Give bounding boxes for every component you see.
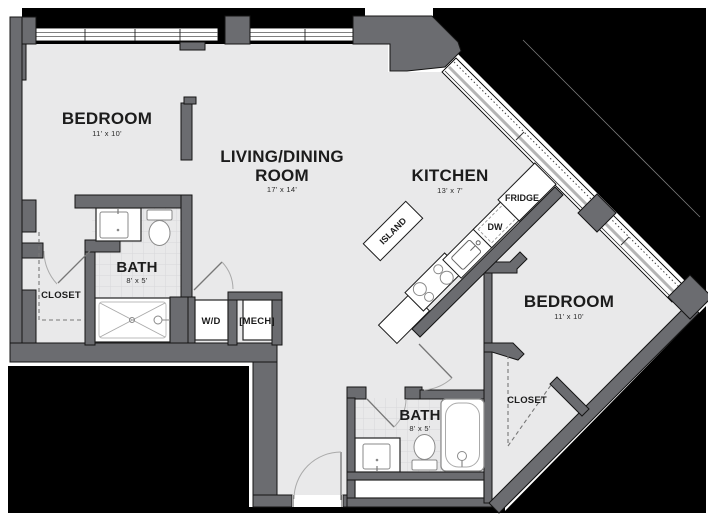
toilet1-tank <box>147 210 172 220</box>
bath1-dims: 8' x 5' <box>126 276 147 285</box>
wall-corridor-bottom <box>253 495 292 507</box>
wd-label: W/D <box>201 316 220 327</box>
bath2-dims: 8' x 5' <box>409 424 430 433</box>
wall-mech-north <box>228 292 282 300</box>
living-dims: 17' x 14' <box>267 185 297 194</box>
wall-bath2-north-b <box>405 387 422 399</box>
wall-left <box>10 17 22 362</box>
wall-bath2-north-c <box>420 390 492 399</box>
bedroom1-label: BEDROOM <box>62 109 152 128</box>
bath1-drain <box>117 229 120 232</box>
fridge-label: FRIDGE <box>505 193 539 203</box>
dw-label: DW <box>488 222 503 232</box>
wall-bath2-south <box>347 472 492 480</box>
wall-top-pier <box>225 16 250 44</box>
bath2-label: BATH <box>399 407 440 424</box>
wall-left-lower <box>22 290 36 343</box>
bedroom1-dims: 11' x 10' <box>92 129 122 138</box>
bath1-label: BATH <box>116 259 157 276</box>
wall-closet1-east <box>85 240 95 345</box>
wall-wd-west <box>188 297 195 343</box>
wall-topleft-block <box>22 17 36 44</box>
living-label-line2: ROOM <box>255 166 309 185</box>
wall-bedroom1-south <box>85 240 120 252</box>
bedroom2-label: BEDROOM <box>524 292 614 311</box>
bath2-drain <box>376 459 379 462</box>
wall-corridor-west <box>253 362 277 505</box>
bedroom2-dims: 11' x 10' <box>554 312 584 321</box>
wall-left-step <box>22 44 26 80</box>
exterior-bottom-left-block <box>8 366 249 507</box>
wall-bath2-north-a <box>347 387 366 399</box>
shower <box>95 298 170 342</box>
kitchen-label: KITCHEN <box>412 166 489 185</box>
wall-bath1-north <box>75 195 192 208</box>
wall-closet-jamb <box>22 243 43 258</box>
wall-bath1-east <box>181 195 192 297</box>
entry-threshold <box>292 495 343 507</box>
living-label-line1: LIVING/DINING <box>220 147 344 166</box>
floor-plan-canvas: BEDROOM 11' x 10' LIVING/DINING ROOM 17'… <box>0 0 708 521</box>
top-windows <box>36 28 353 41</box>
wall-bedroom1-jamb <box>184 97 196 104</box>
kitchen-dims: 13' x 7' <box>437 186 463 195</box>
floor-plan: BEDROOM 11' x 10' LIVING/DINING ROOM 17'… <box>0 0 708 521</box>
exterior-bottom-strip <box>8 507 505 513</box>
toilet2-bowl <box>414 435 435 460</box>
bathtub <box>441 399 484 471</box>
wall-bath2-west <box>347 398 355 505</box>
mech-label: [MECH] <box>239 316 275 327</box>
closet1-label: CLOSET <box>41 290 81 301</box>
wall-bottom-left <box>10 343 277 362</box>
wall-bedroom1-east <box>181 103 192 160</box>
entry-niche <box>355 480 484 498</box>
closet2-label: CLOSET <box>507 395 547 406</box>
wall-left-step2 <box>22 200 36 232</box>
toilet2-tank <box>412 460 437 470</box>
wall-top-tab <box>180 42 205 50</box>
toilet1-bowl <box>149 221 170 246</box>
wall-closet2-west <box>484 262 492 503</box>
wall-unit-bottom <box>347 498 492 507</box>
